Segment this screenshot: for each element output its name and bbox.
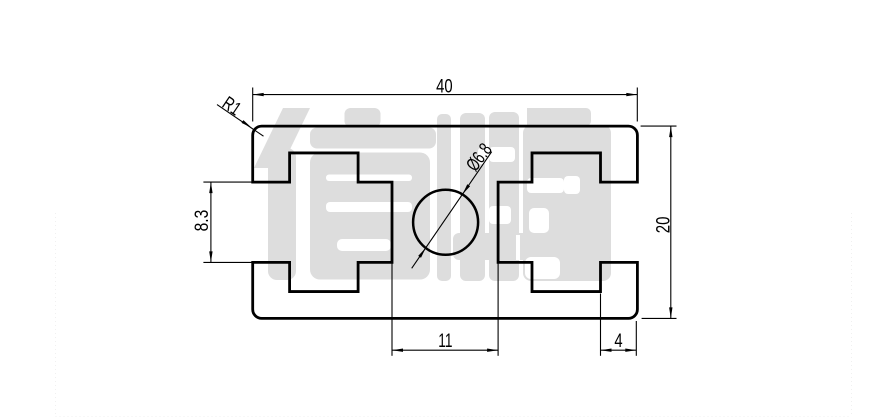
svg-text:11: 11 xyxy=(438,330,452,352)
svg-text:40: 40 xyxy=(436,76,452,97)
svg-text:20: 20 xyxy=(653,217,674,234)
svg-text:8.3: 8.3 xyxy=(191,210,213,232)
svg-text:4: 4 xyxy=(614,330,622,351)
svg-text:R1: R1 xyxy=(218,92,245,120)
